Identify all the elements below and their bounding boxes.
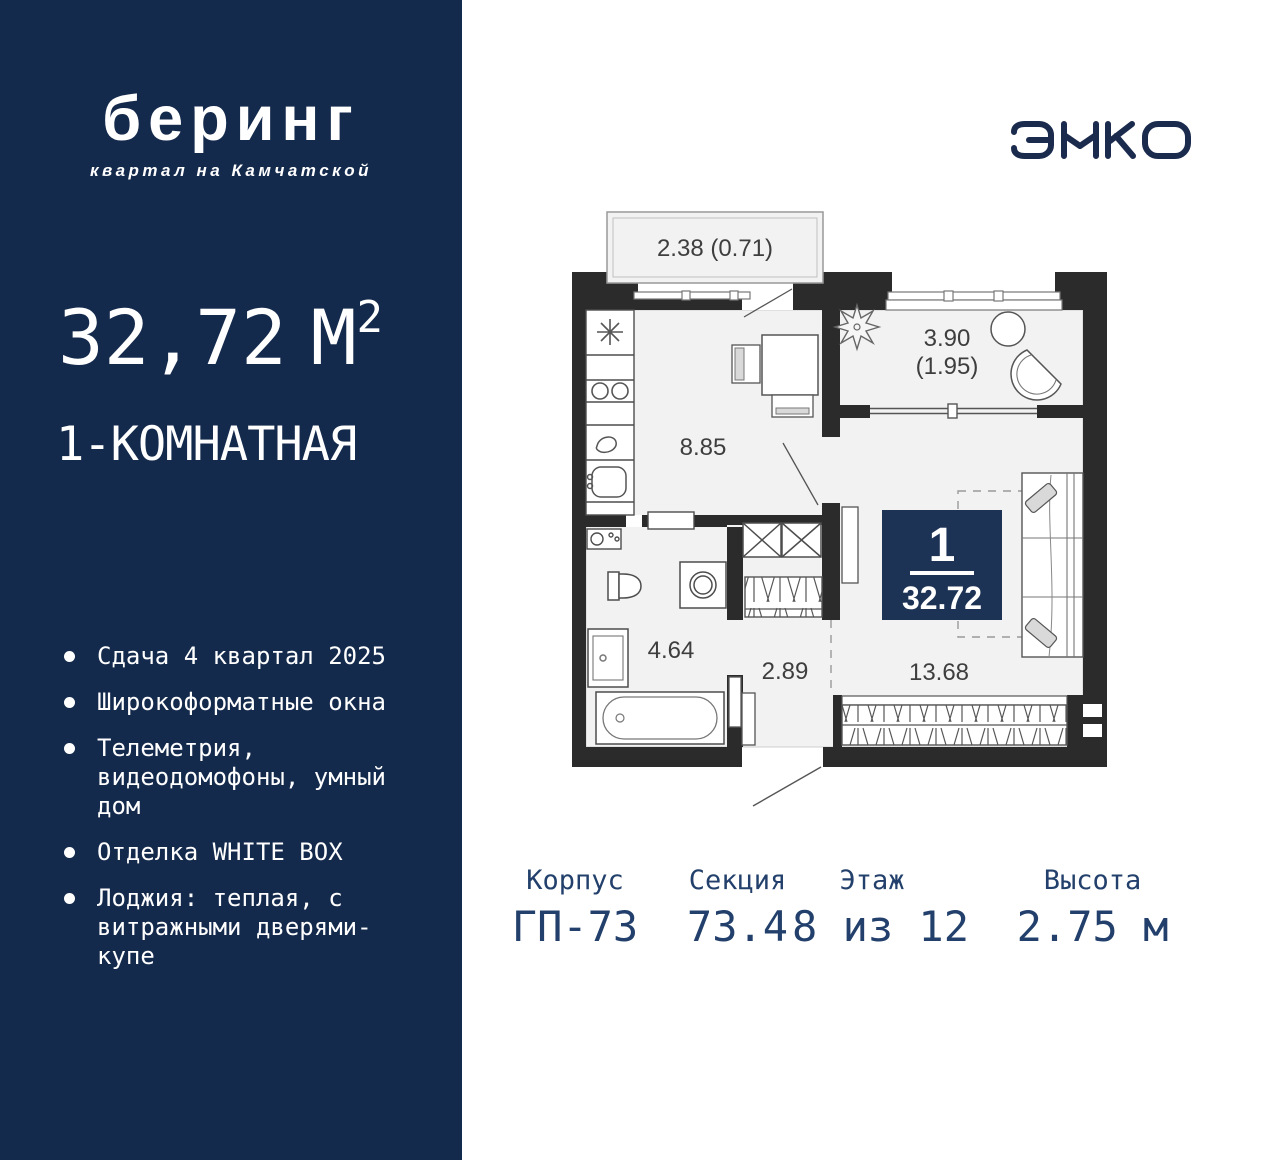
loggia-area-reduced-label: (1.95) [916,353,979,380]
badge-total-area: 32.72 [902,580,982,616]
logo-title: беринг [0,88,462,151]
loggia-window [886,291,1062,310]
room-type-label: 1-КОМНАТНАЯ [56,417,356,472]
hallway-area-label: 2.89 [762,658,809,685]
detail-value: 2.75 м [1005,903,1180,951]
kitchen-area-label: 8.85 [680,434,727,461]
feature-item: Лоджия: теплая, с витражными дверями-куп… [64,884,409,971]
feature-text: Сдача 4 квартал 2025 [97,642,386,671]
feature-item: Сдача 4 квартал 2025 [64,642,409,671]
detail-value: ГП-73 [495,903,655,951]
plant-icon [835,305,879,349]
bathroom-door-leaf [729,677,741,727]
entrance-door-leaf [742,693,755,745]
badge-rooms: 1 [929,519,956,572]
apartment-area-title: 32,72М2 [58,300,383,376]
floor-plan: 2.38 (0.71) [570,205,1110,820]
bullet-icon [64,893,75,904]
logo-subtitle: квартал на Камчатской [0,161,462,181]
bathtub-icon [596,692,724,744]
entrance-door-swing [753,767,821,806]
rooms-badge: 1 32.72 [882,510,1002,620]
wardrobe-icon [743,523,821,557]
kitchen-window [634,291,750,300]
detail-floor: Этаж 8 из 12 [792,866,952,951]
area-value: 32,72 [58,293,287,382]
vanity-icon [587,529,621,549]
toilet-icon [608,572,641,600]
detail-label: Высота [1005,866,1180,896]
area-unit: М [311,293,357,382]
sidebar: беринг квартал на Камчатской 32,72М2 1-К… [0,0,462,1160]
feature-item: Широкоформатные окна [64,688,409,717]
feature-text: Отделка WHITE BOX [97,838,343,867]
round-table-icon [991,312,1025,346]
feature-text: Лоджия: теплая, с витражными дверями-куп… [97,884,395,971]
detail-label: Этаж [792,866,952,896]
detail-corpus: Корпус ГП-73 [495,866,655,951]
enko-letter-n [1064,124,1096,156]
bullet-icon [64,743,75,754]
features-list: Сдача 4 квартал 2025 Широкоформатные окн… [64,642,409,988]
enko-logo: ЭНКО [1002,118,1200,162]
room-door-leaf [842,507,858,583]
bullet-icon [64,651,75,662]
bathroom-area-label: 4.64 [648,637,695,664]
enko-letter-k [1108,124,1133,156]
detail-value: 8 из 12 [792,903,952,951]
brand-logo-bering: беринг квартал на Камчатской [0,88,462,181]
feature-item: Отделка WHITE BOX [64,838,409,867]
panoramic-window [842,696,1067,745]
balcony: 2.38 (0.71) [607,212,823,283]
loggia-area-label: 3.90 [924,325,971,352]
feature-item: Телеметрия, видеодомофоны, умный дом [64,734,409,821]
detail-label: Корпус [495,866,655,896]
clothes-rail [745,577,822,617]
area-sup: 2 [357,292,384,343]
bullet-icon [64,697,75,708]
apartment-card: { "sidebar": { "logo": {"title": "беринг… [0,0,1280,1160]
feature-text: Широкоформатные окна [97,688,386,717]
bedroom-area-label: 13.68 [909,659,969,686]
bed-icon [1022,473,1083,657]
detail-height: Высота 2.75 м [1005,866,1180,951]
bullet-icon [64,847,75,858]
washing-machine-icon [680,562,726,608]
sink-cabinet-icon [588,629,628,687]
enko-letter-o [1145,124,1188,156]
wall-cabinet [648,512,694,529]
balcony-area-label: 2.38 (0.71) [657,235,773,262]
feature-text: Телеметрия, видеодомофоны, умный дом [97,734,395,821]
